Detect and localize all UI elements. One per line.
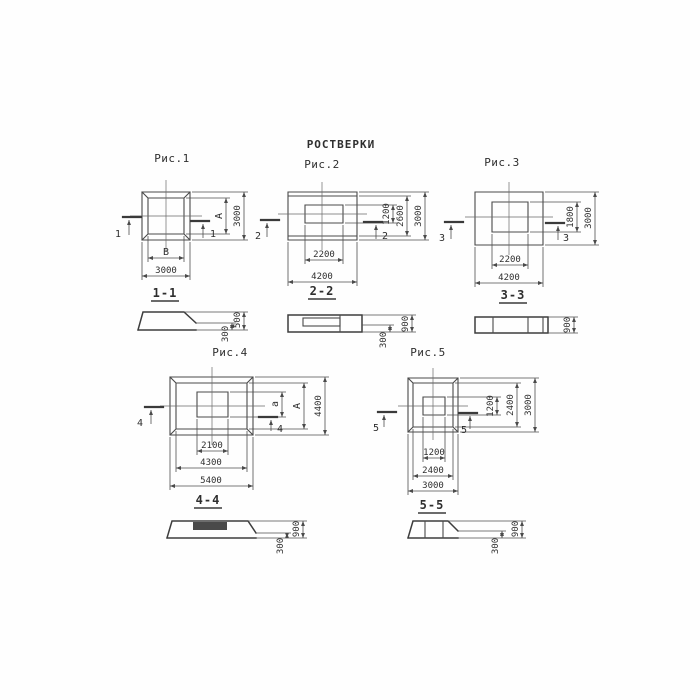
drawing-title: РОСТВЕРКИ	[307, 138, 376, 151]
section-recess-filled	[193, 522, 227, 530]
fig4-section-drawing: 900 300	[167, 521, 307, 554]
fig5-dim-outer-height: 3000	[524, 394, 534, 416]
section-dim-ledge: 300	[491, 538, 501, 554]
fig5-dim-inner-height: 1200	[486, 395, 496, 417]
fig2-dim-inner-height: 1200	[382, 203, 392, 225]
fig4-extension-lines	[170, 377, 329, 490]
scanned-drawing-page: РОСТВЕРКИ Рис.1 В 3000 А 3000 1 1 1-1	[0, 0, 700, 700]
cut-number: 3	[439, 233, 445, 244]
section-recess	[303, 318, 340, 326]
figure-1-label: Рис.1	[154, 152, 190, 165]
fig1-dim-outer-width: 3000	[155, 266, 177, 276]
fig3-dim-inner-width: 2200	[499, 255, 521, 265]
figure-3: Рис.3 2200 4200 1800 3000 3 3 3-3 900	[439, 156, 599, 333]
fig5-extension-lines	[408, 378, 539, 495]
fig5-section-title: 5-5	[420, 498, 445, 512]
fig4-dim-outer-height: 4400	[314, 395, 324, 417]
fig1-dim-inner-width: В	[163, 247, 169, 258]
fig4-dim-outer-width: 5400	[200, 476, 222, 486]
cut-number: 3	[563, 233, 569, 244]
fig2-section-drawing: 900 300	[288, 315, 416, 348]
fig4-dim-mid-width: 4300	[200, 458, 222, 468]
fig2-dim-outer-height: 3000	[414, 205, 424, 227]
fig3-extension-lines	[475, 192, 599, 287]
fig3-section-title: 3-3	[501, 288, 526, 302]
figure-4-label: Рис.4	[212, 346, 248, 359]
fig3-dim-inner-height: 1800	[566, 206, 576, 228]
section-dim-ledge: 300	[379, 332, 389, 348]
figure-5-label: Рис.5	[410, 346, 446, 359]
fig1-section-drawing: 500 300	[138, 312, 248, 342]
section-dividers	[493, 317, 543, 333]
fig5-section-drawing: 900 300	[408, 521, 526, 554]
fig1-dim-inner-height: А	[214, 213, 225, 219]
fig3-cut-mark-left: 3	[439, 222, 463, 244]
cut-number: 4	[137, 418, 143, 429]
fig4-cut-mark-left: 4	[137, 407, 163, 429]
section-dividers	[425, 521, 443, 538]
fig1-cut-mark-left: 1	[115, 217, 141, 240]
fig4-dim-inner-width: 2100	[201, 441, 223, 451]
fig3-dim-outer-width: 4200	[498, 273, 520, 283]
figure-5: Рис.5 1200 2400 3000 1200 2400 3000 5 5 …	[373, 346, 539, 554]
fig5-dim-inner-width: 1200	[423, 448, 445, 458]
fig5-cut-mark-right: 5	[459, 413, 477, 436]
cut-number: 2	[255, 231, 261, 242]
fig2-extension-lines	[288, 192, 429, 286]
cut-number: 2	[382, 231, 388, 242]
section-bar	[475, 317, 548, 333]
section-dim-total: 900	[563, 317, 573, 333]
cut-number: 5	[373, 423, 379, 434]
fig5-dim-mid-height: 2400	[506, 394, 516, 416]
fig4-section-title: 4-4	[196, 493, 221, 507]
fig2-cut-mark-left: 2	[255, 220, 279, 242]
fig5-cut-mark-left: 5	[373, 412, 396, 434]
section-dim-total: 900	[401, 316, 411, 332]
fig2-plan-contours	[288, 192, 357, 240]
cut-number: 1	[210, 229, 216, 240]
section-dim-total: 500	[233, 312, 243, 328]
fig1-section-title: 1-1	[153, 286, 178, 300]
section-dim-ledge: 300	[276, 538, 286, 554]
fig4-cut-mark-right: 4	[259, 417, 283, 435]
section-outline	[408, 521, 458, 538]
fig2-dim-inner-width: 2200	[313, 250, 335, 260]
fig1-dim-outer-height: 3000	[233, 205, 243, 227]
cut-number: 1	[115, 229, 121, 240]
figure-4: Рис.4 2100 4300 5400 а А 4400 4 4 4-4	[137, 346, 329, 554]
fig3-centerlines	[465, 182, 553, 255]
section-outline	[138, 312, 196, 330]
figure-2: Рис.2 2200 4200 1200 2600 3000 2 2 2-2	[255, 158, 429, 348]
cut-number: 5	[461, 425, 467, 436]
figure-2-label: Рис.2	[304, 158, 340, 171]
fig5-dim-mid-width: 2400	[422, 466, 444, 476]
fig3-section-drawing: 900	[475, 317, 578, 333]
section-dim-ledge: 300	[221, 326, 231, 342]
fig2-dim-mid-height: 2600	[396, 205, 406, 227]
fig5-dim-outer-width: 3000	[422, 481, 444, 491]
fig1-cut-mark-right: 1	[191, 221, 216, 240]
cut-number: 4	[277, 424, 283, 435]
figure-3-label: Рис.3	[484, 156, 520, 169]
fig2-section-title: 2-2	[310, 284, 335, 298]
figure-1: Рис.1 В 3000 А 3000 1 1 1-1 500 300	[115, 152, 248, 342]
section-dim-total: 900	[511, 521, 521, 537]
section-dim-total: 900	[292, 521, 302, 537]
fig3-dim-outer-height: 3000	[584, 207, 594, 229]
fig4-dim-mid-height: А	[292, 403, 303, 409]
fig2-dim-outer-width: 4200	[311, 272, 333, 282]
pile-caps-drawing: РОСТВЕРКИ Рис.1 В 3000 А 3000 1 1 1-1	[0, 0, 700, 700]
fig4-dim-inner-height: а	[270, 401, 281, 407]
